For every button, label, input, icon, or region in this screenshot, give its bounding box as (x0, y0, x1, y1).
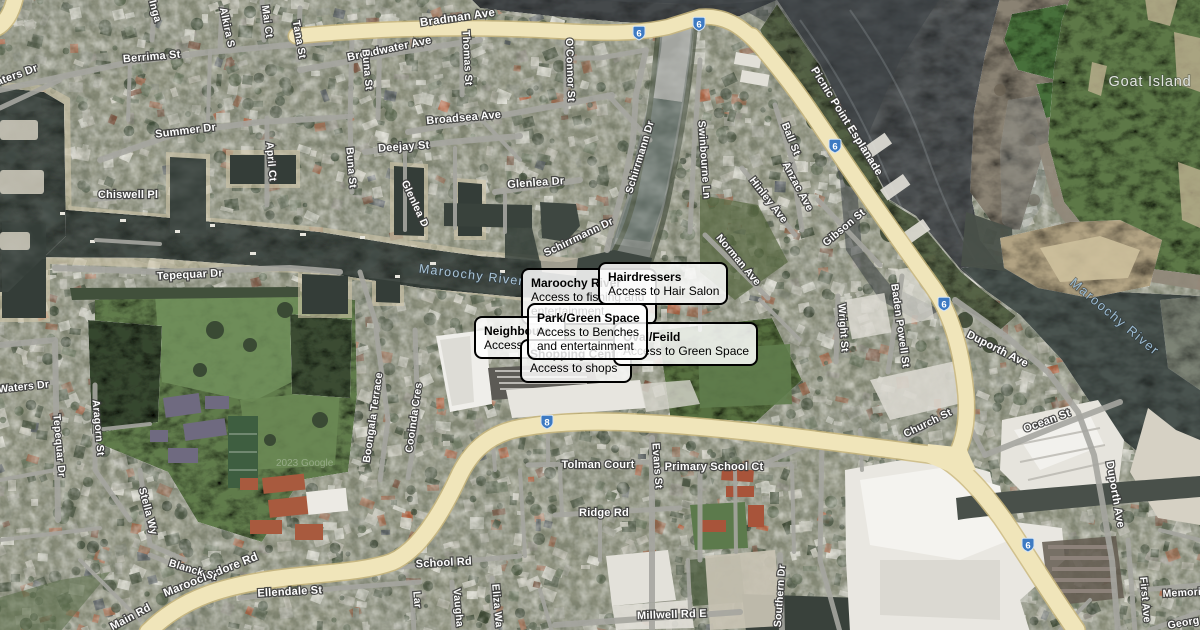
svg-text:Primary School Ct: Primary School Ct (665, 461, 764, 473)
svg-text:6: 6 (636, 28, 641, 39)
svg-text:8: 8 (544, 417, 549, 428)
svg-text:6: 6 (1025, 540, 1030, 551)
svg-text:6: 6 (832, 141, 837, 152)
svg-text:O'Connor St: O'Connor St (563, 38, 577, 102)
svg-text:Tolman Court: Tolman Court (561, 459, 634, 471)
svg-text:Lar: Lar (410, 591, 423, 609)
svg-text:Chiswell Pl: Chiswell Pl (98, 189, 158, 201)
svg-text:Ridge Rd: Ridge Rd (579, 507, 629, 519)
svg-text:6: 6 (941, 299, 946, 310)
svg-text:6: 6 (696, 19, 701, 30)
svg-text:2023 Google: 2023 Google (276, 458, 334, 469)
svg-text:Millwell Rd E: Millwell Rd E (637, 608, 707, 622)
svg-text:Memori: Memori (1162, 586, 1200, 600)
svg-text:Goat Island: Goat Island (1109, 74, 1192, 90)
